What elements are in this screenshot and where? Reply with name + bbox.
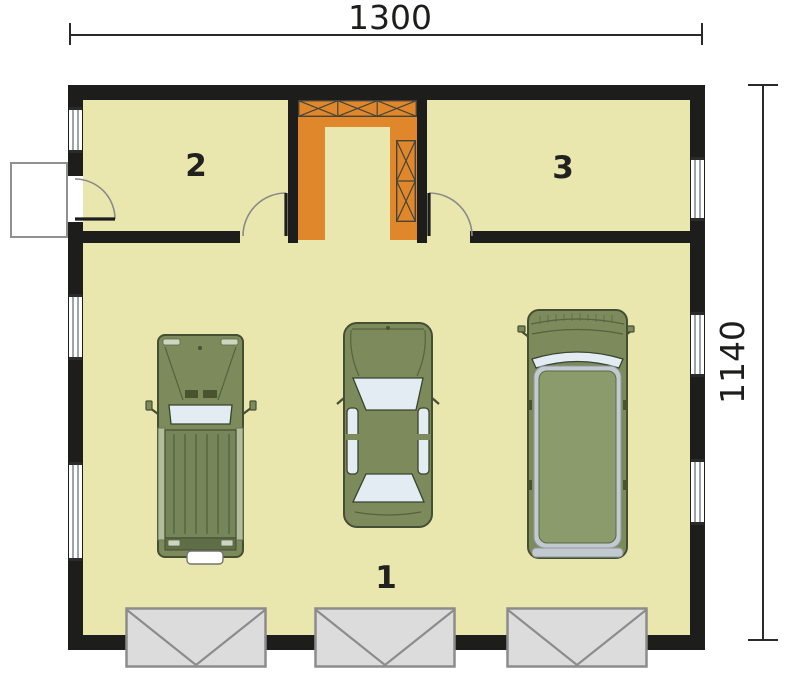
garage-door-1 [125,607,267,668]
stair-top-cross-strip [298,100,417,117]
window-glass-line [72,297,74,357]
dimension-top-tick-left [69,23,71,45]
garage-door-2 [314,607,456,668]
stair-opening [325,127,390,240]
interior-wall-left-segment [83,231,240,243]
window-glass-line [699,315,701,374]
entry-door-swing [60,170,124,230]
window-glass-line [694,462,696,522]
window-glass-line [72,110,74,150]
room3-door-swing [424,188,478,242]
window-glass-line [694,315,696,374]
pickup-truck [144,330,258,570]
room2-door-swing [238,188,292,242]
room-label-2: 2 [180,148,212,184]
floor-plan-canvas: 1300 1140 [0,0,800,677]
window-glass-line [72,465,74,558]
dimension-top-tick-right [701,23,703,45]
window-glass-line [699,462,701,522]
window-left-3 [69,462,82,561]
dimension-top-label: 1300 [320,0,460,34]
dimension-right-label: 1140 [715,317,747,407]
dimension-right-bar-top [748,84,778,86]
window-right-1 [691,157,704,221]
dimension-right-line [762,84,764,641]
window-glass-line [77,297,79,357]
dimension-right-bar-bottom [748,639,778,641]
window-right-3 [691,459,704,525]
window-glass-line [77,465,79,558]
garage-door-3 [506,607,648,668]
window-left-2 [69,294,82,360]
window-left-1 [69,107,82,153]
room-label-1: 1 [370,560,402,596]
stair-flight-cross-panel [396,140,416,222]
dimension-top-line [70,34,703,36]
window-glass-line [77,110,79,150]
window-glass-line [699,160,701,218]
van [518,304,634,564]
window-glass-line [694,160,696,218]
sedan-car [336,316,440,534]
interior-wall-right-segment [470,231,690,243]
room-label-3: 3 [547,150,579,186]
window-right-2 [691,312,704,377]
